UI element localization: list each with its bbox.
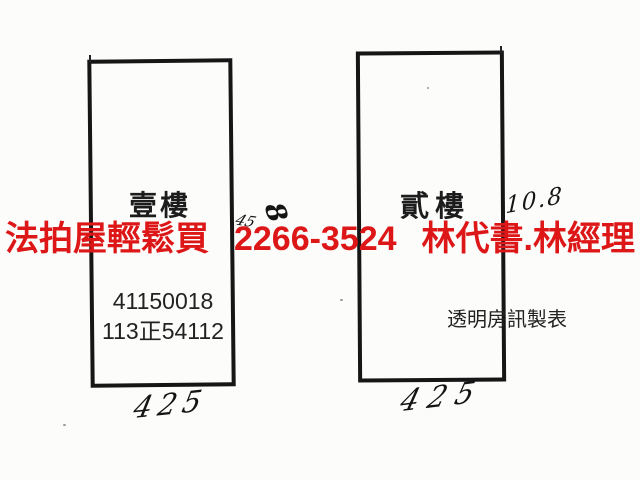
case-number-line1: 41150018 (93, 286, 233, 316)
scan-tick (89, 55, 91, 62)
case-number-line2: 113正54112 (93, 316, 233, 346)
ad-contact-names: 林代書.林經理 (422, 219, 635, 259)
ad-phone-number: 2266-3524 (234, 219, 397, 259)
ad-overlay: 法拍屋輕鬆買 2266-3524 林代書.林經理 (0, 219, 640, 259)
floor2-side-dimension: 10.8 (505, 183, 564, 220)
floorplan-scan: 壹樓 貳樓 41150018 113正54112 透明房訊製表 425 425 … (0, 0, 640, 480)
ad-slogan: 法拍屋輕鬆買 (5, 219, 209, 259)
scan-tick (500, 46, 502, 54)
watermark-credit: 透明房訊製表 (447, 303, 567, 332)
scan-speck (63, 424, 66, 426)
case-number-block: 41150018 113正54112 (93, 286, 233, 346)
floor1-label: 壹樓 (129, 184, 191, 224)
floor1-bottom-dimension: 425 (130, 383, 210, 426)
scan-speck (340, 299, 343, 301)
